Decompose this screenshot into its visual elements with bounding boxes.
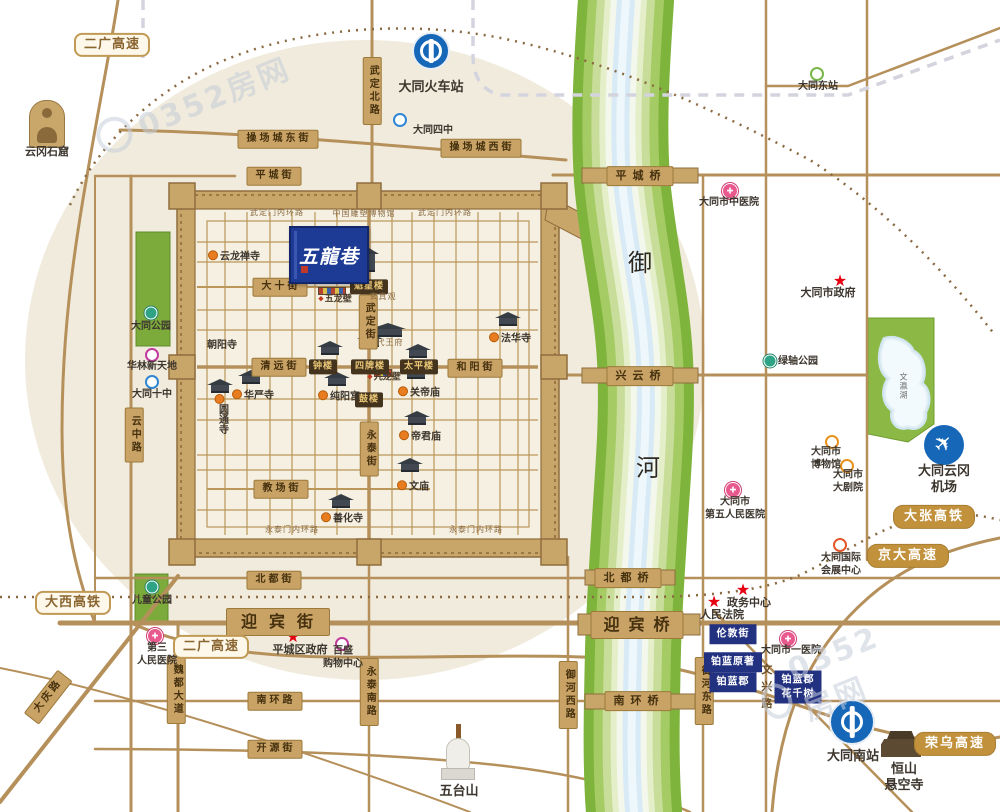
temple-label: 华严寺	[232, 389, 274, 403]
exhibition-icon	[833, 538, 847, 552]
road-label: 教场街	[254, 480, 309, 499]
station-label: 大同火车站	[398, 80, 463, 96]
poi-label: 中国雕塑博物馆	[333, 209, 396, 219]
temple-label: 关帝庙	[398, 386, 440, 400]
temple-icon	[404, 411, 430, 427]
road-label: 清远街	[252, 358, 307, 377]
bridge-label: 北都桥	[595, 568, 662, 588]
bridge-label: 南环桥	[605, 691, 672, 711]
expressway-badge: 二广高速	[173, 635, 249, 659]
poi-label: 云冈石窟	[25, 145, 69, 159]
poi-label: 大同市 大剧院	[833, 470, 863, 495]
station-label: 大同南站	[827, 749, 879, 765]
temple-icon	[405, 344, 431, 360]
bridge-label: 平城桥	[607, 166, 674, 186]
road-label: 武定北路	[363, 57, 382, 125]
pagoda-icon	[441, 724, 475, 780]
temple-label: 玄真观	[370, 292, 397, 302]
bridge-label: 迎宾桥	[590, 611, 683, 639]
park-label: 大同公园	[131, 321, 171, 334]
park-icon	[146, 581, 159, 594]
park-label: 儿童公园	[132, 595, 172, 608]
expressway-badge: 荣乌高速	[914, 732, 996, 756]
expressway-badge: 二广高速	[74, 33, 150, 57]
airplane-icon	[924, 425, 964, 465]
school-label: 大同四中	[413, 125, 453, 138]
road-label: 南环路	[248, 692, 303, 711]
temple-label: 恒山 悬空寺	[884, 762, 923, 795]
school-icon	[145, 375, 159, 389]
temple-label: 朝阳寺	[207, 340, 237, 353]
temple-label: 善化寺	[321, 512, 363, 526]
road-label: 操场城东街	[238, 130, 319, 149]
government-label: 大同市政府	[801, 286, 856, 300]
river-label: 河	[636, 453, 660, 483]
park-icon	[145, 307, 158, 320]
road-label: 平城街	[247, 167, 302, 186]
temple-icon	[207, 379, 233, 395]
street-label: 武定门内环路	[418, 208, 472, 218]
road-label: 北都街	[247, 571, 302, 590]
station-icon	[810, 67, 824, 81]
street-label: 永泰门内环路	[449, 525, 503, 535]
road-label: 云中路	[125, 408, 144, 463]
train-station-icon	[412, 32, 450, 70]
park-icon	[764, 355, 777, 368]
project-banner-text: 五龍巷	[299, 242, 359, 269]
poi-label: 九龙壁	[367, 372, 400, 383]
government-label: 人民法院	[700, 608, 744, 622]
temple-icon	[328, 494, 354, 510]
temple-label: 圆通寺	[215, 394, 228, 434]
expressway-badge: 大张高铁	[893, 505, 975, 529]
temple-label: 云龙禅寺	[208, 250, 260, 264]
road-label: 迎宾街	[226, 608, 330, 636]
hospital-label: 大同市中医院	[699, 197, 759, 210]
temple-label: 代王府	[377, 338, 404, 348]
road-label: 武定街	[359, 295, 378, 350]
temple-label: 文庙	[397, 480, 429, 494]
expressway-badge: 京大高速	[867, 544, 949, 568]
project-badge: 伦敦街	[710, 624, 757, 644]
street-label: 武定门内环路	[250, 208, 304, 218]
poi-label: 大同国际 会展中心	[821, 553, 861, 578]
buddha-icon	[29, 100, 65, 148]
poi-label: 五台山	[439, 784, 478, 800]
road-label: 开源街	[248, 740, 303, 759]
road-label: 操场城西街	[441, 139, 522, 158]
street-label: 永泰门内环路	[265, 525, 319, 535]
temple-icon	[317, 341, 343, 357]
poi-label: 五龙壁	[318, 294, 351, 305]
station-label: 大同东站	[798, 81, 838, 94]
government-label: 平城区政府	[273, 643, 328, 657]
temple-icon	[495, 312, 521, 328]
school-label: 大同十中	[132, 389, 172, 402]
temple-icon	[397, 458, 423, 474]
hospital-label: 大同市 第五人民医院	[705, 497, 765, 522]
expressway-badge: 大西高铁	[35, 591, 111, 615]
road-label: 御河西路	[559, 661, 578, 729]
airport-label: 大同云冈机场	[916, 464, 972, 497]
road-label: 永泰街	[360, 422, 379, 477]
poi-label: 百盛 购物中心	[323, 646, 363, 671]
poi-label: 大同市 博物馆	[811, 447, 841, 472]
park-label: 绿轴公园	[778, 356, 818, 369]
road-label: 和阳街	[448, 359, 503, 378]
poi-label: 华林新天地	[127, 361, 177, 374]
tower-badge: 太平楼	[400, 359, 438, 374]
river-label: 御	[628, 248, 652, 278]
temple-icon	[324, 372, 350, 388]
lake-label: 文瀛湖	[898, 373, 908, 400]
temple-label: 纯阳宫	[318, 390, 360, 404]
project-banner: 五龍巷	[289, 226, 369, 284]
temple-label: 法华寺	[489, 332, 531, 346]
hospital-label: 第三 人民医院	[137, 643, 177, 668]
tower-badge: 钟楼	[309, 359, 337, 374]
datong-location-map: 0352房网 0352房网 五龍巷 操场城东街操场城西街平城街大十街清远街和阳街…	[0, 0, 1000, 812]
temple-label: 帝君庙	[399, 430, 441, 444]
school-icon	[393, 113, 407, 127]
bridge-label: 兴云桥	[607, 366, 674, 386]
